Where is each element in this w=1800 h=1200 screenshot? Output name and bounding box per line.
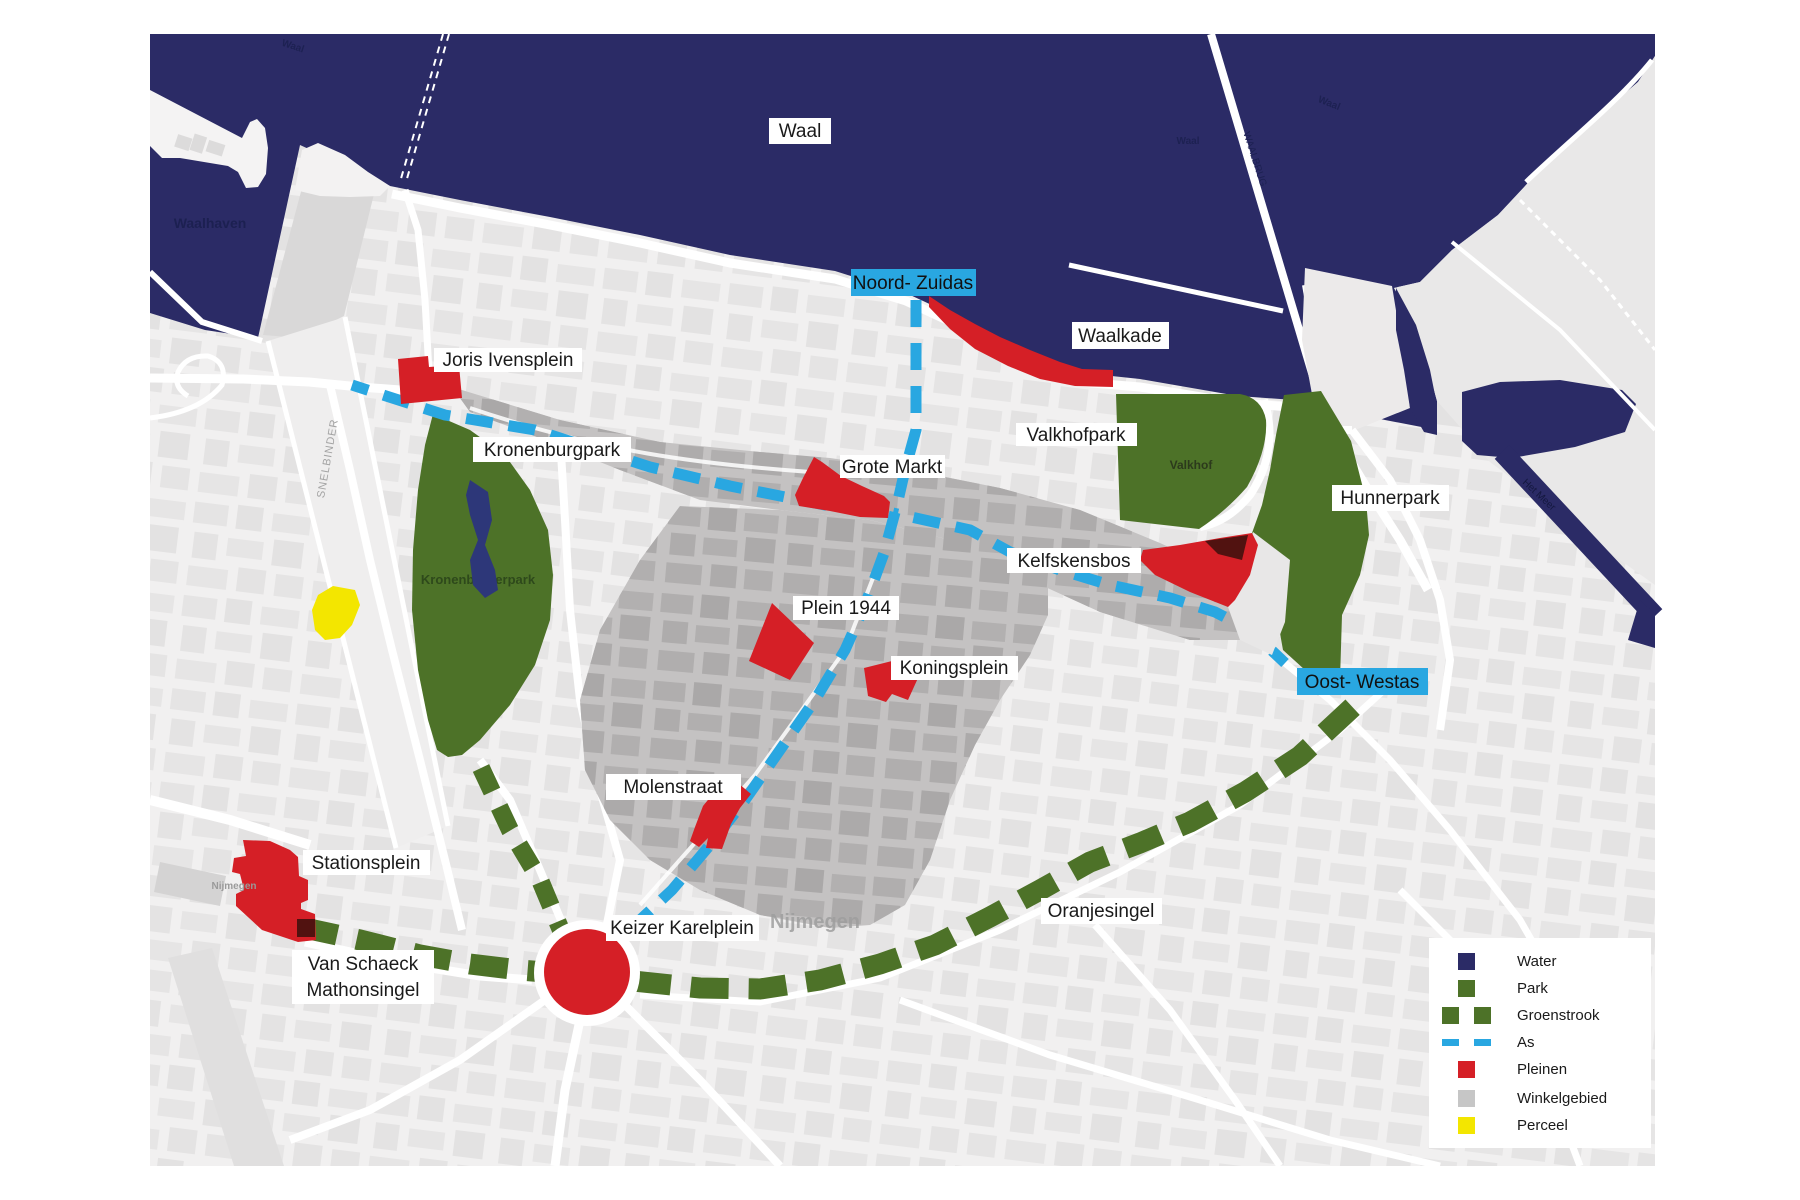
svg-text:Perceel: Perceel xyxy=(1517,1117,1568,1134)
svg-text:Pleinen: Pleinen xyxy=(1517,1061,1567,1078)
svg-text:Hunnerpark: Hunnerpark xyxy=(1340,488,1440,509)
svg-text:As: As xyxy=(1517,1034,1535,1051)
svg-text:Water: Water xyxy=(1517,953,1556,970)
svg-text:Park: Park xyxy=(1517,980,1548,997)
svg-text:Keizer Karelplein: Keizer Karelplein xyxy=(610,918,754,939)
svg-text:Waalhaven: Waalhaven xyxy=(174,215,247,231)
svg-text:Stationsplein: Stationsplein xyxy=(312,853,421,874)
svg-text:Kelfskensbos: Kelfskensbos xyxy=(1017,551,1130,572)
svg-text:Joris Ivensplein: Joris Ivensplein xyxy=(443,350,574,371)
svg-text:Nijmegen: Nijmegen xyxy=(211,881,256,892)
svg-text:Oranjesingel: Oranjesingel xyxy=(1048,901,1155,922)
svg-text:Valkhof: Valkhof xyxy=(1170,458,1214,472)
svg-text:Van Schaeck: Van Schaeck xyxy=(308,954,419,975)
svg-text:Mathonsingel: Mathonsingel xyxy=(306,980,419,1001)
svg-text:Valkhofpark: Valkhofpark xyxy=(1027,425,1126,446)
svg-text:Nijmegen: Nijmegen xyxy=(770,911,860,933)
svg-text:Plein 1944: Plein 1944 xyxy=(801,598,891,619)
svg-text:Oost- Westas: Oost- Westas xyxy=(1305,672,1420,693)
svg-text:Waal: Waal xyxy=(779,121,822,142)
svg-text:Winkelgebied: Winkelgebied xyxy=(1517,1090,1607,1107)
svg-text:Waalkade: Waalkade xyxy=(1078,326,1162,347)
svg-text:Koningsplein: Koningsplein xyxy=(900,658,1009,679)
svg-text:Grote Markt: Grote Markt xyxy=(842,457,943,478)
svg-text:Waal: Waal xyxy=(1177,136,1200,147)
svg-text:Noord- Zuidas: Noord- Zuidas xyxy=(853,273,973,294)
svg-text:Molenstraat: Molenstraat xyxy=(623,777,723,798)
svg-text:Kronenburgpark: Kronenburgpark xyxy=(484,440,621,461)
svg-text:Groenstrook: Groenstrook xyxy=(1517,1007,1600,1024)
